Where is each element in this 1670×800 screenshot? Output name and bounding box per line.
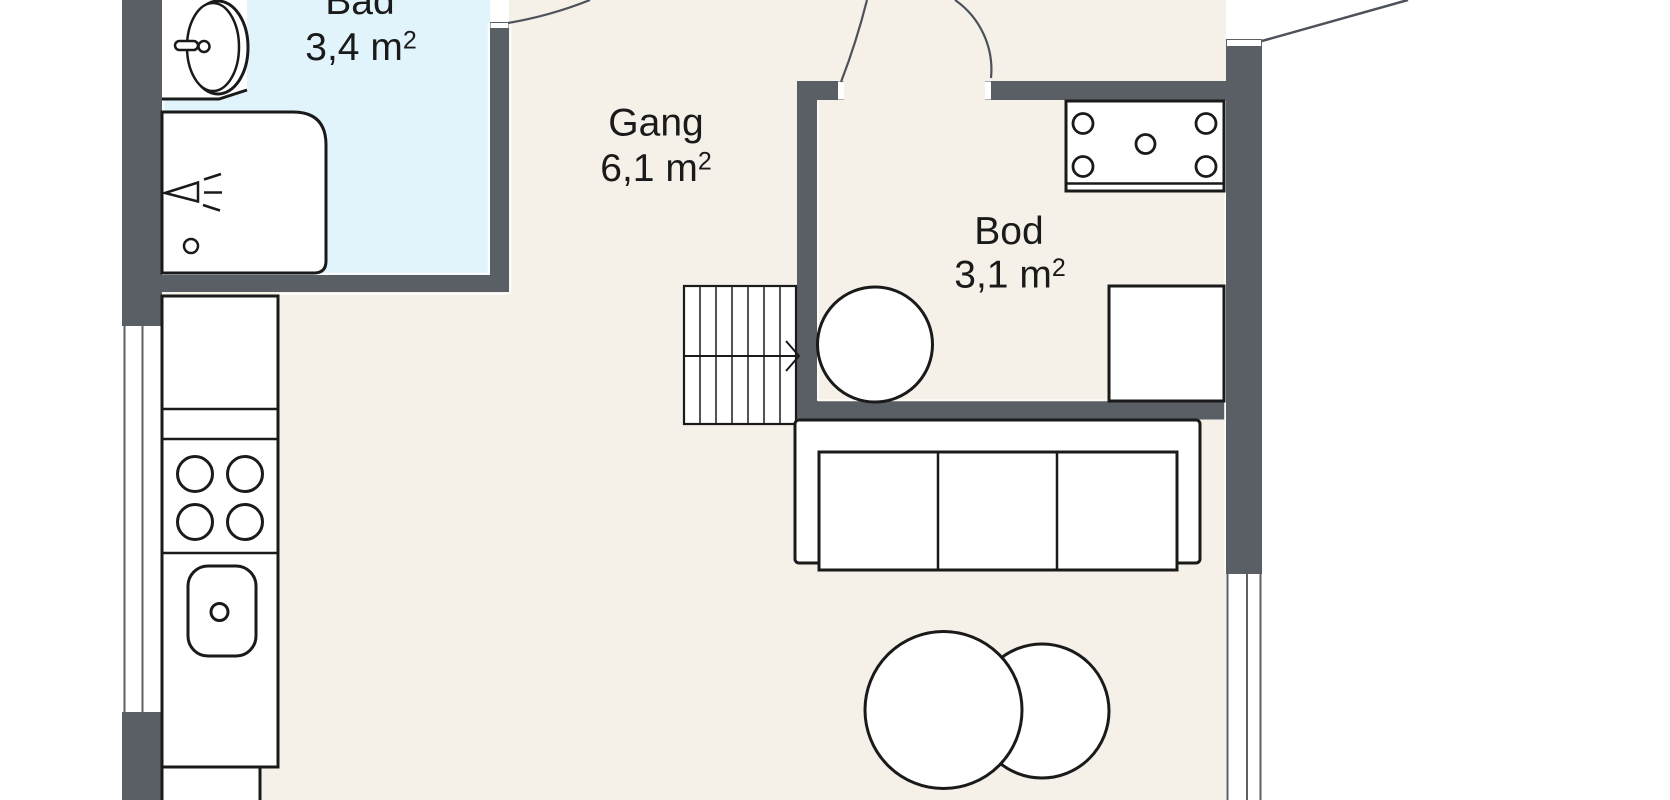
svg-text:Gang: Gang [608,102,703,145]
svg-text:Bad: Bad [325,0,394,23]
svg-text:6,1 m2: 6,1 m2 [600,147,711,190]
svg-text:Bod: Bod [974,210,1043,253]
svg-text:3,1 m2: 3,1 m2 [954,254,1065,297]
svg-text:3,4 m2: 3,4 m2 [305,26,416,69]
